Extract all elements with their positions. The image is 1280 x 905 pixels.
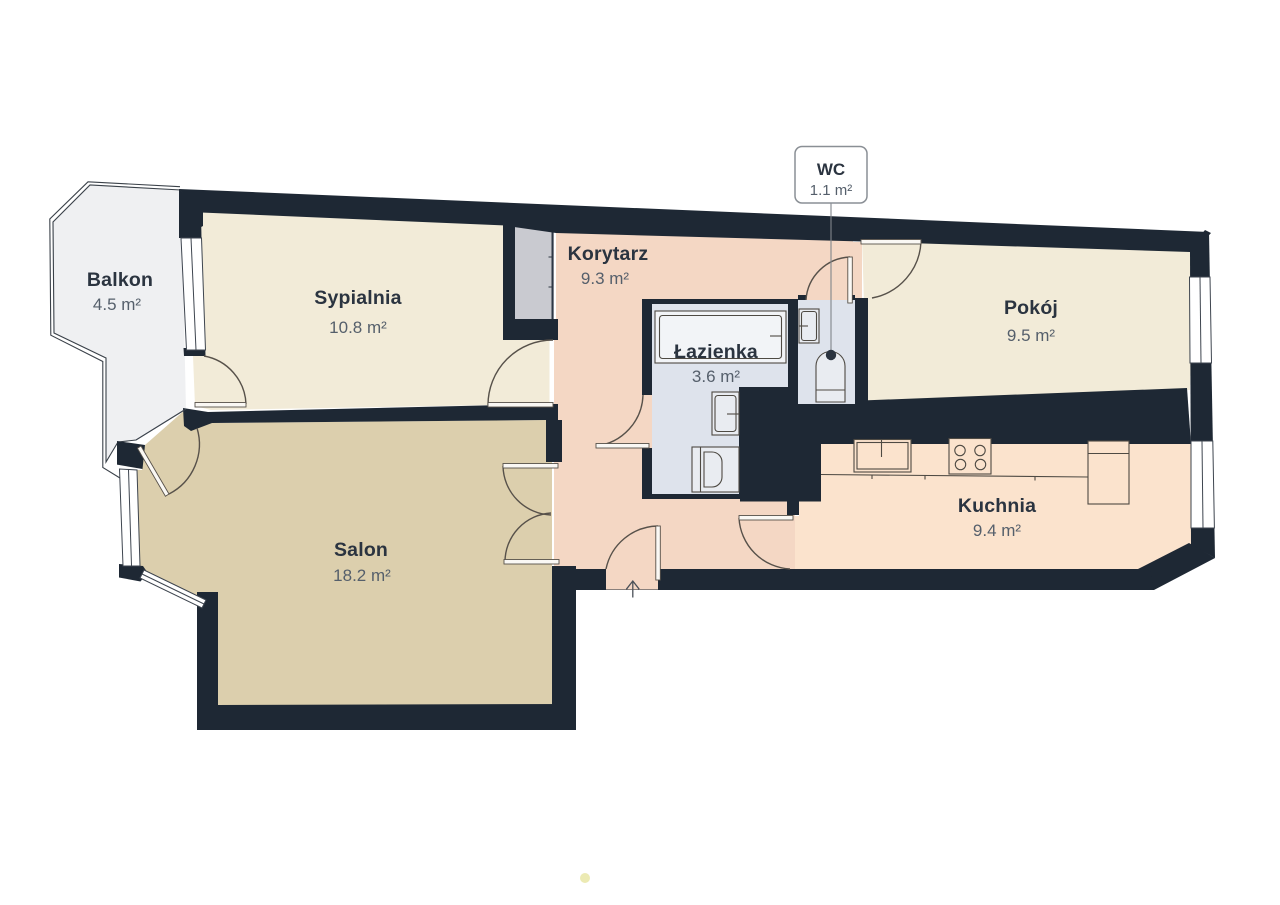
svg-text:Korytarz: Korytarz	[568, 243, 649, 265]
svg-text:Łazienka: Łazienka	[674, 341, 758, 363]
svg-text:1.1 m²: 1.1 m²	[810, 182, 853, 199]
svg-text:9.4 m²: 9.4 m²	[973, 521, 1022, 540]
svg-text:Pokój: Pokój	[1004, 297, 1058, 319]
svg-text:10.8 m²: 10.8 m²	[329, 318, 387, 337]
svg-text:9.5 m²: 9.5 m²	[1007, 326, 1056, 345]
svg-text:Sypialnia: Sypialnia	[314, 287, 401, 309]
svg-text:3.6 m²: 3.6 m²	[692, 367, 741, 386]
svg-text:18.2 m²: 18.2 m²	[333, 566, 391, 585]
svg-text:Salon: Salon	[334, 539, 388, 561]
svg-text:Kuchnia: Kuchnia	[958, 495, 1036, 517]
svg-text:WC: WC	[817, 160, 845, 179]
svg-text:4.5 m²: 4.5 m²	[93, 295, 142, 314]
svg-text:9.3 m²: 9.3 m²	[581, 269, 630, 288]
svg-text:Balkon: Balkon	[87, 269, 153, 291]
